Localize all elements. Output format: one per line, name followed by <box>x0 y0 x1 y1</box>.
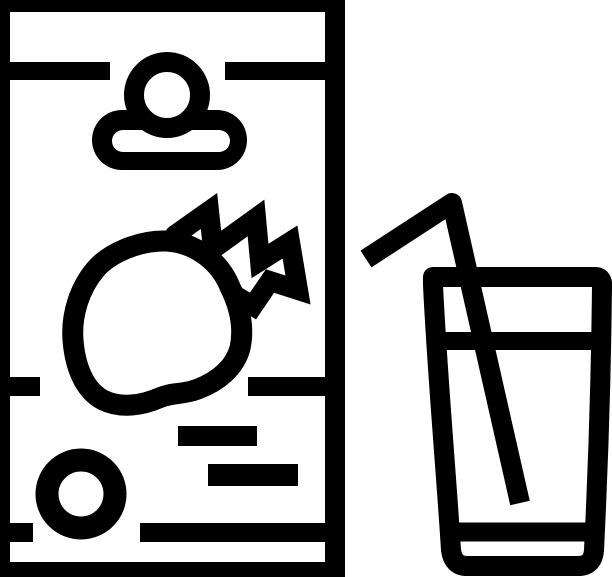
strawberry-icon <box>73 211 298 405</box>
carton-bottom-line-right <box>140 523 345 542</box>
carton-border-bottom <box>0 562 345 577</box>
carton-middle-line-right <box>248 377 345 396</box>
cap-ring <box>134 62 200 128</box>
label-text-bar-2 <box>208 464 298 486</box>
carton-border-left <box>0 0 10 577</box>
carton-bottom-line-left <box>0 523 33 542</box>
carton-border-top <box>0 0 345 12</box>
juice-carton-icon <box>0 0 345 577</box>
icon-canvas <box>0 0 612 577</box>
label-text-bar-1 <box>178 426 257 446</box>
label-dot-icon <box>47 460 115 528</box>
strawberry-juice-icon <box>0 0 612 577</box>
carton-top-line-right <box>225 62 345 80</box>
bottle-cap-icon <box>92 62 247 170</box>
strawberry-body <box>73 241 242 405</box>
carton-border-right <box>325 0 345 577</box>
carton-middle-line-left <box>0 377 40 396</box>
carton-top-line-left <box>0 62 110 80</box>
juice-glass-icon <box>366 203 602 566</box>
